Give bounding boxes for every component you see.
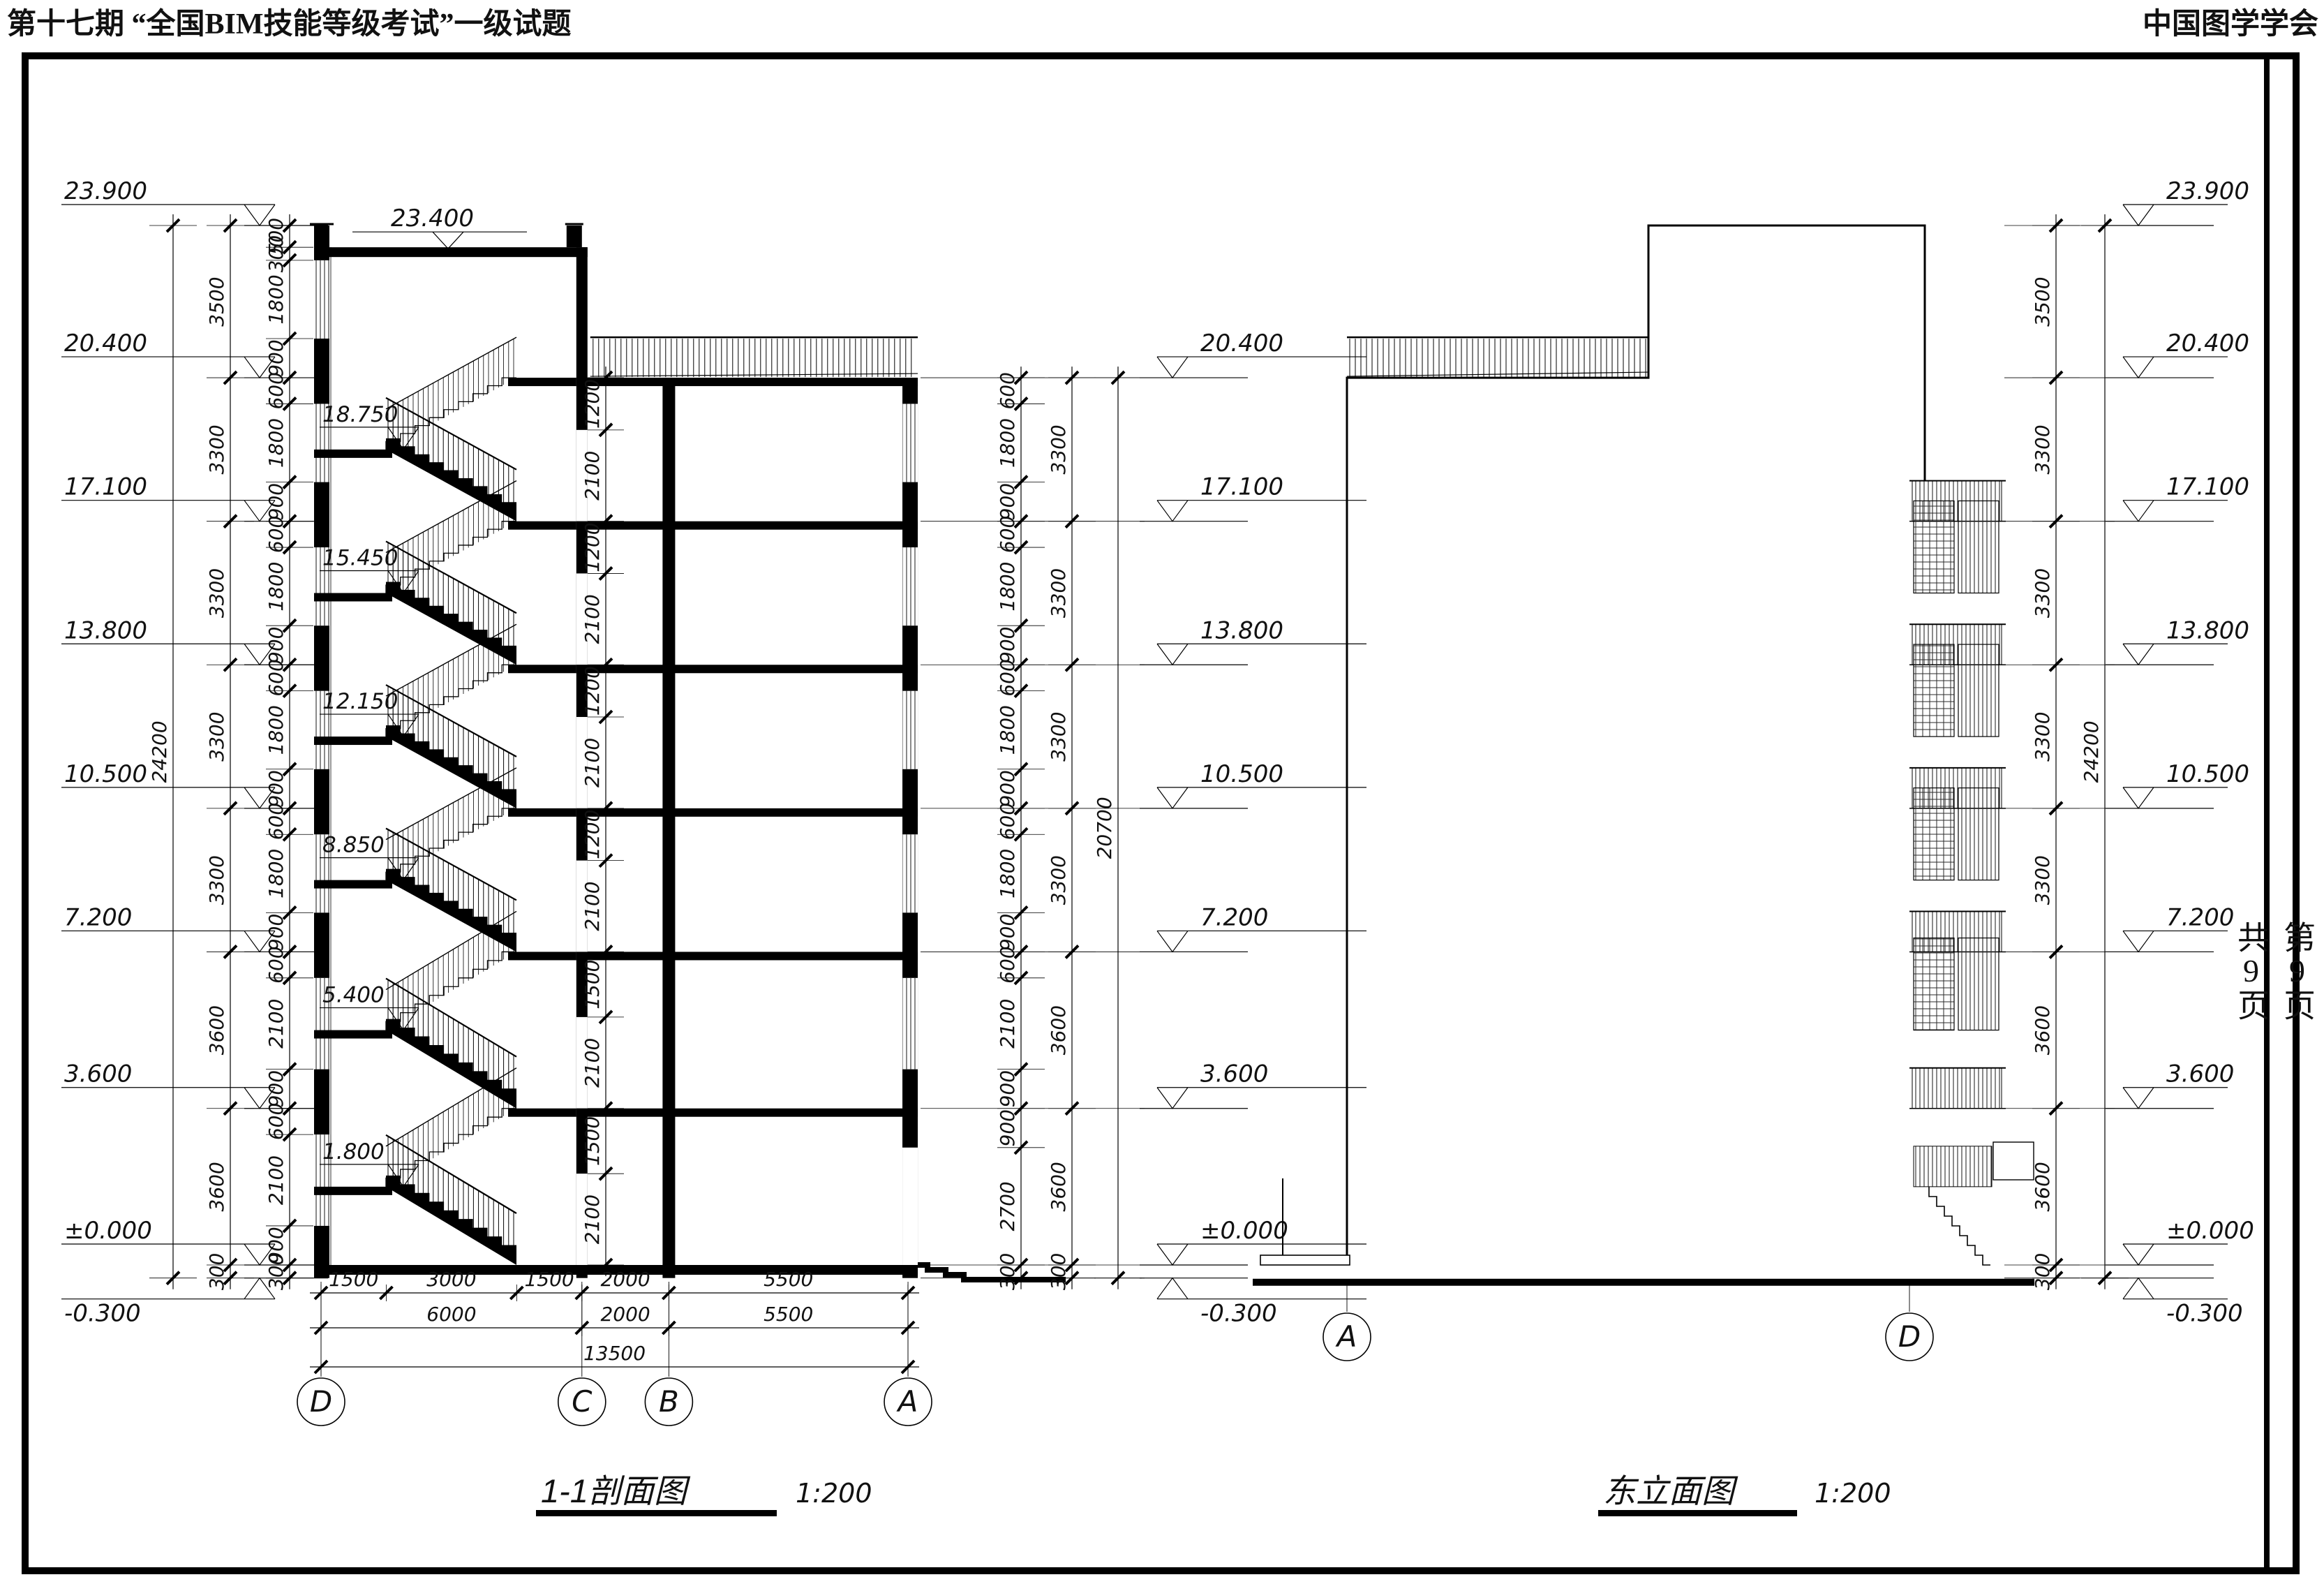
elevation-value: 13.800 — [64, 616, 147, 644]
dim-value: 3300 — [2031, 568, 2054, 618]
dim-value: 900 — [265, 626, 288, 663]
sheet-title: 第十七期 “全国BIM技能等级考试”一级试题 — [7, 7, 572, 40]
stair-landing — [508, 521, 576, 530]
dim-value: 300 — [265, 1253, 288, 1290]
dim-value: 2100 — [581, 1038, 604, 1088]
unit-window — [1958, 644, 1999, 737]
elevation-scale: 1:200 — [1815, 1478, 1891, 1509]
dim-value: 3500 — [2031, 276, 2054, 326]
elevation-value: 13.800 — [2166, 616, 2249, 644]
floor-slab — [576, 378, 918, 386]
window-a-glass — [902, 547, 918, 626]
elevation-value: 23.900 — [64, 177, 147, 205]
stair-landing — [508, 952, 576, 960]
page-current: 第9页 — [2274, 921, 2320, 1021]
dim-value: 300 — [265, 235, 288, 272]
elevation-title-underline — [1598, 1510, 1797, 1516]
elevation-value: -0.300 — [2166, 1300, 2243, 1328]
dim-value: 900 — [265, 1070, 288, 1107]
column-b — [662, 378, 675, 1278]
dim-value: 2100 — [996, 999, 1019, 1049]
dim-value: 900 — [996, 626, 1019, 663]
dim-value: 3300 — [1047, 424, 1070, 474]
dim-value: 3300 — [205, 568, 228, 618]
dim-value: 600 — [996, 946, 1019, 983]
dim-value: 1800 — [265, 561, 288, 611]
stair-level-value: 18.750 — [322, 402, 398, 427]
dim-value: 3300 — [2031, 424, 2054, 474]
dim-value: 3300 — [1047, 568, 1070, 618]
dim-value: 1200 — [581, 379, 604, 429]
dim-value: 2100 — [265, 999, 288, 1049]
dim-value: 3500 — [205, 276, 228, 326]
floor-slab — [576, 952, 918, 960]
dim-value: 3600 — [205, 1005, 228, 1055]
elevation-value: 3.600 — [1200, 1060, 1268, 1088]
elevation-value: -0.300 — [1200, 1300, 1277, 1328]
stair-level-value: 15.450 — [322, 545, 398, 570]
stair-level-value: 1.800 — [322, 1139, 385, 1164]
dim-value: 2100 — [265, 1155, 288, 1205]
dim-value: 2000 — [600, 1268, 650, 1291]
floor-slab — [576, 808, 918, 817]
dim-value: 900 — [265, 483, 288, 520]
dim-value: 1200 — [581, 522, 604, 572]
dim-value: 1200 — [581, 666, 604, 716]
elevation-value: ±0.000 — [64, 1217, 152, 1245]
dim-value: 13500 — [583, 1342, 646, 1365]
dim-value: 300 — [996, 1253, 1019, 1290]
dim-value: 600 — [996, 372, 1019, 409]
stair-window — [1914, 644, 1954, 737]
elevation-value: 10.500 — [1200, 760, 1283, 788]
dim-value: 3300 — [2031, 711, 2054, 761]
half-landing — [314, 880, 392, 889]
dim-value: 1800 — [996, 849, 1019, 898]
dim-value: 1800 — [265, 274, 288, 324]
dim-value: 300 — [1047, 1253, 1070, 1290]
dim-value: 3600 — [1047, 1162, 1070, 1211]
dim-value: 600 — [996, 659, 1019, 696]
page-number-panel: 第9页 共9页 — [2284, 684, 2320, 1257]
dim-value: 3300 — [205, 855, 228, 905]
half-landing — [314, 1030, 392, 1039]
dim-value: 300 — [2031, 1253, 2054, 1290]
dim-value: 1500 — [524, 1268, 574, 1291]
dim-value: 2100 — [581, 1194, 604, 1244]
elevation-value: 7.200 — [1200, 903, 1268, 931]
dim-value: 2100 — [581, 738, 604, 787]
stair-level-value: 12.150 — [322, 689, 398, 714]
dim-value: 3600 — [2031, 1162, 2054, 1211]
dim-value: 1200 — [581, 810, 604, 859]
floor-slab — [576, 521, 918, 530]
unit-window — [1958, 788, 1999, 880]
elevation-value: 17.100 — [2166, 473, 2249, 501]
dim-value: 2100 — [581, 451, 604, 501]
window-d-glass — [314, 260, 329, 339]
dim-value: 900 — [996, 1109, 1019, 1146]
dim-value: 900 — [996, 1070, 1019, 1107]
dim-value: 1800 — [265, 418, 288, 468]
floor-slab — [576, 665, 918, 673]
dim-value: 1500 — [329, 1268, 378, 1291]
elevation-value: 17.100 — [64, 473, 147, 501]
section-title: 1-1剖面图 — [541, 1472, 691, 1509]
dim-value: 600 — [996, 803, 1019, 840]
elevation-value: -0.300 — [64, 1300, 141, 1328]
window-a-glass — [902, 978, 918, 1070]
elevation-value: 3.600 — [64, 1060, 132, 1088]
elevation-value: ±0.000 — [2166, 1217, 2254, 1245]
porch-slab — [1260, 1255, 1350, 1265]
dim-value: 600 — [996, 516, 1019, 553]
dim-value: 900 — [265, 770, 288, 807]
stair-level-value: 5.400 — [322, 983, 385, 1008]
dim-value: 5500 — [764, 1268, 813, 1291]
dim-value: 1500 — [581, 960, 604, 1009]
grid-bubble-label: C — [572, 1384, 593, 1419]
elevation-value: 23.900 — [2166, 177, 2249, 205]
grid-bubble-label: D — [310, 1384, 332, 1419]
half-landing — [314, 450, 392, 458]
elevation-value: 10.500 — [64, 760, 147, 788]
org-name: 中国图学学会 — [2143, 8, 2318, 40]
roof-level-value: 23.400 — [391, 205, 474, 232]
dim-value: 1800 — [265, 705, 288, 755]
unit-window — [1958, 938, 1999, 1030]
window-a — [902, 1148, 918, 1265]
dim-value: 1800 — [996, 418, 1019, 468]
stair-window — [1914, 788, 1954, 880]
stair-window — [1914, 938, 1954, 1030]
entry-railing — [1914, 1146, 1992, 1187]
dim-value: 900 — [996, 770, 1019, 807]
dim-value: 900 — [265, 914, 288, 951]
stair-landing — [508, 378, 576, 386]
elevation-value: 20.400 — [1200, 330, 1283, 357]
elevation-value: 3.600 — [2166, 1060, 2234, 1088]
half-landing — [314, 1187, 392, 1195]
elevation-value: 20.400 — [2166, 330, 2249, 357]
elevation-value: 20.400 — [64, 330, 147, 357]
drawing-sheet: 第十七期 “全国BIM技能等级考试”一级试题 中国图学学会 1-1剖面图 1:2… — [0, 0, 2324, 1591]
dim-value: 3000 — [426, 1268, 476, 1291]
wall-a — [902, 378, 918, 1278]
dim-value: 1500 — [581, 1116, 604, 1166]
tower-roof-slab — [314, 247, 588, 257]
dim-value: 3300 — [1047, 855, 1070, 905]
unit-window — [1958, 501, 1999, 593]
dim-value: 3600 — [1047, 1005, 1070, 1055]
dim-value: 300 — [205, 1253, 228, 1290]
dim-value: 1800 — [996, 705, 1019, 755]
dim-value: 900 — [996, 483, 1019, 520]
dim-value: 3300 — [205, 711, 228, 761]
dim-value: 3600 — [205, 1162, 228, 1211]
floor-slab — [576, 1109, 918, 1117]
grid-bubble-label: B — [659, 1384, 679, 1419]
grid-bubble-label: A — [896, 1384, 918, 1419]
dim-value: 900 — [265, 339, 288, 376]
dim-value: 900 — [996, 914, 1019, 951]
dim-value: 5500 — [764, 1303, 813, 1326]
dim-value: 2100 — [581, 881, 604, 931]
stair-landing — [508, 665, 576, 673]
dim-value: 2700 — [996, 1181, 1019, 1231]
cad-canvas: 第十七期 “全国BIM技能等级考试”一级试题 中国图学学会 1-1剖面图 1:2… — [0, 0, 2324, 1591]
half-landing — [314, 593, 392, 601]
window-a-glass — [902, 691, 918, 769]
section-title-underline — [536, 1510, 777, 1516]
grid-bubble-label: D — [1898, 1319, 1921, 1354]
dim-value: 3600 — [2031, 1005, 2054, 1055]
elevation-value: 7.200 — [64, 903, 132, 931]
elevation-value: 13.800 — [1200, 616, 1283, 644]
window-a-glass — [902, 404, 918, 482]
elevation-value: 10.500 — [2166, 760, 2249, 788]
stair-window — [1914, 501, 1954, 593]
elevation-value: ±0.000 — [1200, 1217, 1288, 1245]
entry-canopy — [1993, 1142, 2034, 1180]
half-landing — [314, 737, 392, 745]
elevation-value: 17.100 — [1200, 473, 1283, 501]
elevation-title: 东立面图 — [1603, 1472, 1738, 1509]
dim-value: 3300 — [205, 424, 228, 474]
dim-value: 3300 — [1047, 711, 1070, 761]
dim-value: 2100 — [581, 594, 604, 644]
grid-bubble-label: A — [1335, 1319, 1357, 1354]
dim-value: 6000 — [426, 1303, 476, 1326]
section-scale: 1:200 — [796, 1478, 872, 1509]
stair-landing — [508, 1109, 576, 1117]
balcony-railing — [1912, 1068, 2002, 1109]
dim-value: 24200 — [2080, 720, 2103, 783]
dim-value: 1800 — [265, 849, 288, 898]
parapet-right — [567, 225, 582, 247]
dim-value: 24200 — [148, 720, 171, 783]
stair-level-value: 8.850 — [322, 833, 385, 858]
window-a-glass — [902, 834, 918, 912]
dim-value: 20700 — [1093, 797, 1116, 859]
dim-value: 3300 — [2031, 855, 2054, 905]
dim-value: 2000 — [600, 1303, 650, 1326]
dim-value: 1800 — [996, 561, 1019, 611]
stair-landing — [508, 808, 576, 817]
page-total: 共9页 — [2228, 921, 2274, 1021]
elevation-value: 7.200 — [2166, 903, 2234, 931]
